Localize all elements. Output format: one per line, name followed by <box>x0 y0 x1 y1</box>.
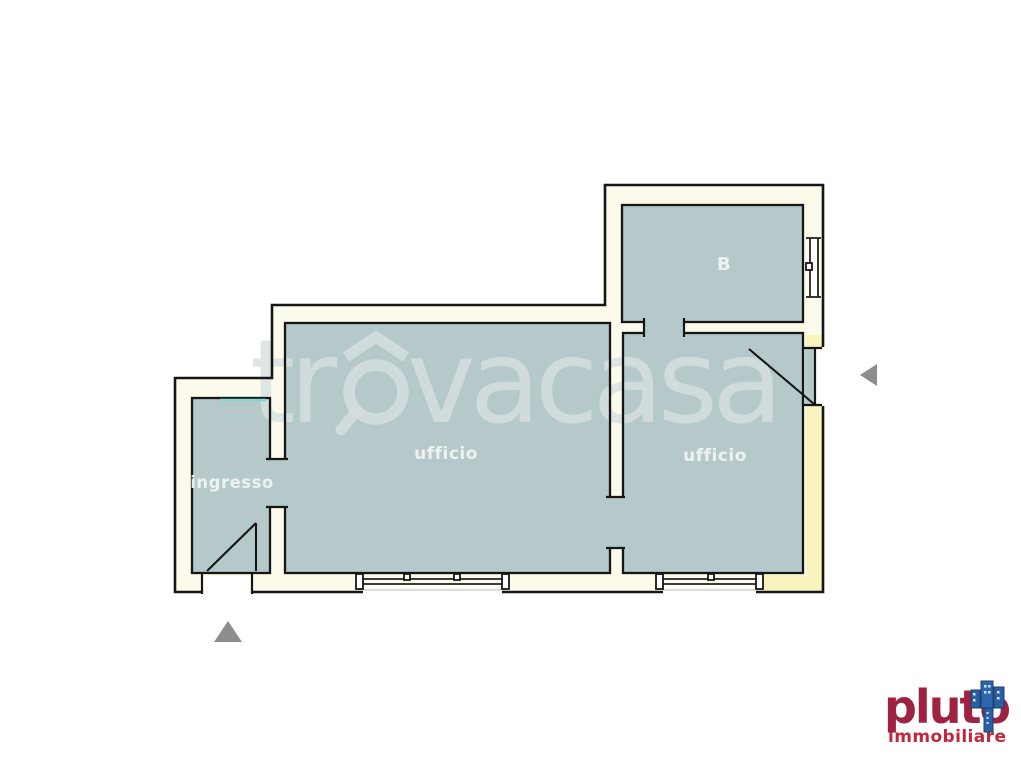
room-label-ufficio-left: ufficio <box>414 444 478 464</box>
window-bathroom <box>806 238 821 297</box>
arrow-up-icon <box>214 621 242 642</box>
room-label-ufficio-right: ufficio <box>683 446 747 466</box>
city-building-icon <box>970 678 1008 736</box>
room-label-bathroom: B <box>717 254 731 275</box>
watermark-text-suffix: vacasa <box>407 315 777 450</box>
trovacasa-watermark: tr vacasa <box>250 315 777 450</box>
arrow-left-icon <box>860 364 877 386</box>
room-bathroom <box>622 205 803 322</box>
pluto-logo: pluto immobiliare <box>884 686 1014 746</box>
wall-accent-corner <box>764 575 822 591</box>
door-opening-bathroom <box>644 318 684 337</box>
room-label-ingresso: ingresso <box>190 473 274 492</box>
floorplan-image: tr vacasa <box>0 0 1021 768</box>
pluto-logo-name: pluto <box>884 686 1014 730</box>
door-opening-uffici <box>606 497 625 548</box>
watermark-text-prefix: tr <box>250 315 337 450</box>
